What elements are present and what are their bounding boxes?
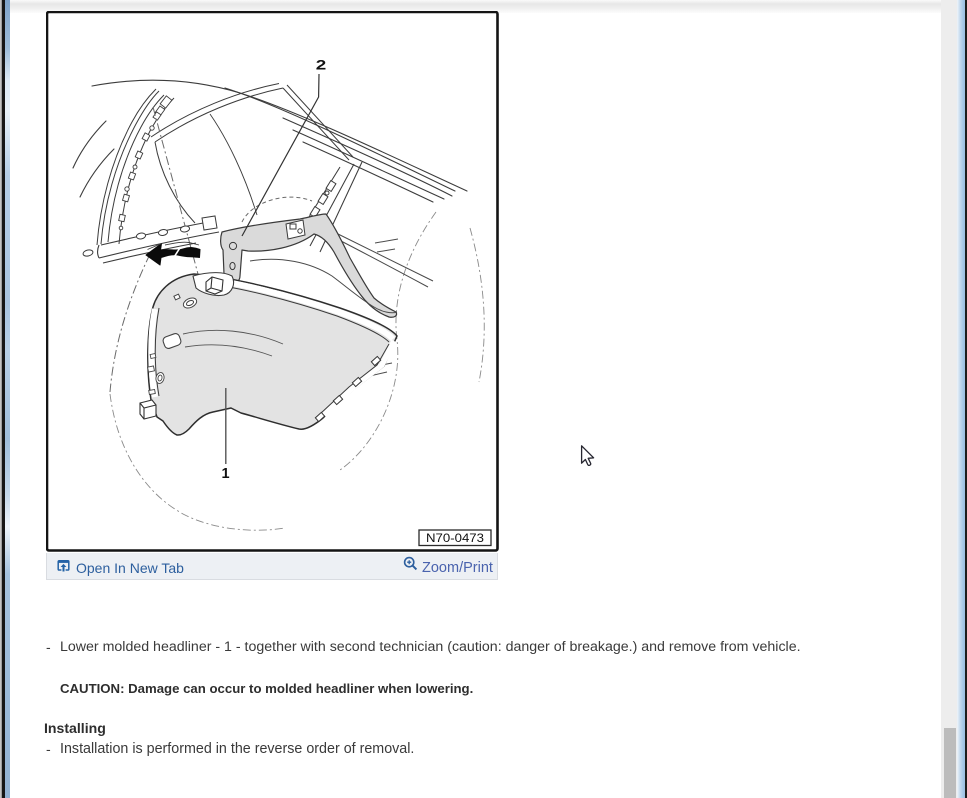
svg-text:1: 1: [221, 466, 229, 482]
svg-text:N70-0473: N70-0473: [426, 531, 484, 545]
svg-text:2: 2: [316, 58, 327, 73]
